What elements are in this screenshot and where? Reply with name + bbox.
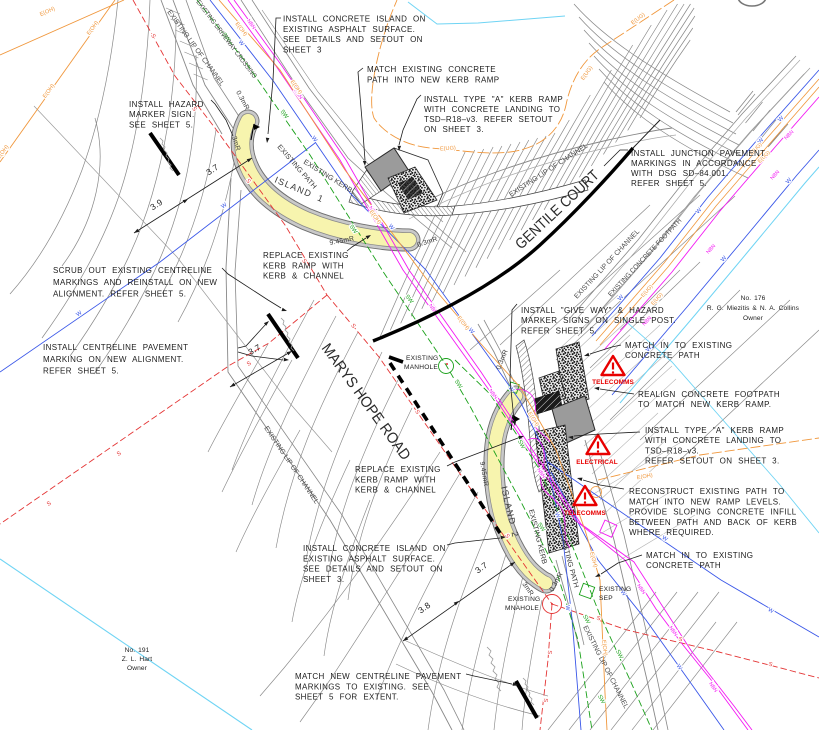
svg-text:Z. L. Hart: Z. L. Hart bbox=[122, 656, 153, 663]
svg-text:SEE SHEET 5.: SEE SHEET 5. bbox=[129, 120, 193, 129]
svg-text:EXISTING ASPHALT SURFACE.: EXISTING ASPHALT SURFACE. bbox=[303, 554, 435, 563]
svg-text:MATCH IN TO EXISTING: MATCH IN TO EXISTING bbox=[625, 341, 732, 350]
svg-text:TSD–R18–v3.: TSD–R18–v3. bbox=[645, 446, 699, 455]
svg-text:EXISTING: EXISTING bbox=[406, 355, 438, 362]
svg-text:CONCRETE PATH: CONCRETE PATH bbox=[646, 561, 721, 570]
svg-text:SHEET 3: SHEET 3 bbox=[283, 46, 322, 55]
svg-text:BETWEEN PATH AND BACK OF KERB: BETWEEN PATH AND BACK OF KERB bbox=[629, 518, 797, 527]
svg-text:INSTALL CONCRETE ISLAND ON: INSTALL CONCRETE ISLAND ON bbox=[283, 15, 426, 24]
svg-text:No. 191: No. 191 bbox=[125, 647, 150, 654]
svg-text:INSTALL TYPE "A" KERB RAMP: INSTALL TYPE "A" KERB RAMP bbox=[645, 426, 784, 435]
svg-text:MATCH EXISTING CONCRETE: MATCH EXISTING CONCRETE bbox=[367, 65, 496, 74]
svg-text:WITH CONCRETE LANDING TO: WITH CONCRETE LANDING TO bbox=[424, 105, 560, 114]
svg-text:No. 176: No. 176 bbox=[741, 295, 766, 302]
svg-text:ELECTRICAL: ELECTRICAL bbox=[576, 459, 617, 466]
svg-text:KERB & CHANNEL: KERB & CHANNEL bbox=[355, 486, 436, 495]
svg-text:PATH INTO NEW KERB RAMP: PATH INTO NEW KERB RAMP bbox=[367, 75, 499, 84]
svg-text:MATCH IN TO EXISTING: MATCH IN TO EXISTING bbox=[646, 551, 753, 560]
svg-text:TELECOMMS: TELECOMMS bbox=[564, 510, 606, 517]
svg-text:KERB RAMP WITH: KERB RAMP WITH bbox=[355, 475, 436, 484]
svg-text:SEE DETAILS AND SETOUT ON: SEE DETAILS AND SETOUT ON bbox=[303, 565, 443, 574]
svg-text:R. G. Miezitis & N. A. Collins: R. G. Miezitis & N. A. Collins bbox=[707, 305, 800, 312]
svg-text:REPLACE EXISTING: REPLACE EXISTING bbox=[263, 251, 349, 260]
svg-text:WITH DSG SD–84.001.: WITH DSG SD–84.001. bbox=[631, 169, 729, 178]
svg-text:INSTALL "GIVE WAY" & HAZARD: INSTALL "GIVE WAY" & HAZARD bbox=[521, 306, 664, 315]
svg-text:RECONSTRUCT EXISTING PATH TO: RECONSTRUCT EXISTING PATH TO bbox=[629, 487, 785, 496]
svg-text:TSD–R18–v3. REFER SETOUT: TSD–R18–v3. REFER SETOUT bbox=[424, 115, 553, 124]
svg-text:TO MATCH NEW KERB RAMP.: TO MATCH NEW KERB RAMP. bbox=[638, 400, 771, 409]
svg-text:SEE DETAILS AND SETOUT ON: SEE DETAILS AND SETOUT ON bbox=[283, 35, 423, 44]
svg-text:MATCH INTO NEW RAMP LEVELS.: MATCH INTO NEW RAMP LEVELS. bbox=[629, 497, 781, 506]
svg-text:Owner: Owner bbox=[127, 665, 148, 672]
svg-text:INSTALL JUNCTION PAVEMENT: INSTALL JUNCTION PAVEMENT bbox=[631, 149, 765, 158]
svg-text:S: S bbox=[542, 698, 548, 703]
svg-text:EXISTING ASPHALT SURFACE.: EXISTING ASPHALT SURFACE. bbox=[283, 25, 415, 34]
svg-text:S: S bbox=[546, 650, 552, 655]
svg-text:MARKINGS AND REINSTALL ON NEW: MARKINGS AND REINSTALL ON NEW bbox=[53, 278, 217, 287]
svg-text:PROVIDE SLOPING CONCRETE INFIL: PROVIDE SLOPING CONCRETE INFILL bbox=[629, 508, 797, 517]
svg-text:REPLACE EXISTING: REPLACE EXISTING bbox=[355, 465, 441, 474]
svg-text:MATCH NEW CENTRELINE PAVEMENT: MATCH NEW CENTRELINE PAVEMENT bbox=[295, 672, 461, 681]
svg-text:INSTALL TYPE "A" KERB RAMP: INSTALL TYPE "A" KERB RAMP bbox=[424, 95, 563, 104]
svg-text:MARKING ON NEW ALIGNMENT.: MARKING ON NEW ALIGNMENT. bbox=[43, 355, 184, 364]
svg-text:EXISTING: EXISTING bbox=[599, 586, 631, 593]
svg-text:EXISTING: EXISTING bbox=[508, 596, 540, 603]
svg-text:MANHOLE: MANHOLE bbox=[404, 364, 438, 371]
svg-text:REFER SHEET 5.: REFER SHEET 5. bbox=[631, 179, 707, 188]
svg-text:INSTALL CONCRETE ISLAND ON: INSTALL CONCRETE ISLAND ON bbox=[303, 544, 446, 553]
svg-text:MARKER SIGNS ON SINGLE POST.: MARKER SIGNS ON SINGLE POST. bbox=[521, 316, 676, 325]
svg-text:INSTALL CENTRELINE PAVEMENT: INSTALL CENTRELINE PAVEMENT bbox=[43, 343, 188, 352]
svg-text:REFER SHEET 5.: REFER SHEET 5. bbox=[521, 326, 597, 335]
svg-text:MARKER SIGN.: MARKER SIGN. bbox=[129, 110, 195, 119]
svg-text:KERB & CHANNEL: KERB & CHANNEL bbox=[263, 272, 344, 281]
svg-text:SHEET 5 FOR EXTENT.: SHEET 5 FOR EXTENT. bbox=[295, 693, 399, 702]
svg-text:WHERE REQUIRED.: WHERE REQUIRED. bbox=[629, 528, 714, 537]
svg-text:ALIGNMENT. REFER SHEET 5.: ALIGNMENT. REFER SHEET 5. bbox=[53, 290, 186, 299]
svg-text:W: W bbox=[564, 605, 570, 611]
svg-text:Owner: Owner bbox=[743, 315, 764, 322]
svg-text:CONCRETE PATH: CONCRETE PATH bbox=[625, 351, 700, 360]
svg-text:WITH CONCRETE LANDING TO: WITH CONCRETE LANDING TO bbox=[645, 436, 781, 445]
svg-text:MARKINGS TO EXISTING. SEE: MARKINGS TO EXISTING. SEE bbox=[295, 682, 429, 691]
svg-text:TELECOMMS: TELECOMMS bbox=[592, 379, 634, 386]
svg-text:MARKINGS IN ACCORDANCE: MARKINGS IN ACCORDANCE bbox=[631, 159, 757, 168]
svg-text:SEP: SEP bbox=[599, 595, 613, 602]
svg-text:REFER SETOUT ON SHEET 3.: REFER SETOUT ON SHEET 3. bbox=[645, 457, 780, 466]
svg-text:REALIGN CONCRETE FOOTPATH: REALIGN CONCRETE FOOTPATH bbox=[638, 390, 780, 399]
svg-text:SHEET 3.: SHEET 3. bbox=[303, 575, 344, 584]
svg-text:KERB RAMP WITH: KERB RAMP WITH bbox=[263, 261, 344, 270]
svg-text:REFER SHEET 5.: REFER SHEET 5. bbox=[43, 367, 119, 376]
svg-text:MNAHOLE: MNAHOLE bbox=[505, 605, 539, 612]
svg-text:INSTALL HAZARD: INSTALL HAZARD bbox=[129, 100, 204, 109]
svg-text:ON SHEET 3.: ON SHEET 3. bbox=[424, 125, 484, 134]
svg-text:E(UG): E(UG) bbox=[440, 145, 456, 152]
svg-text:SCRUB OUT EXISTING CENTRELINE: SCRUB OUT EXISTING CENTRELINE bbox=[53, 266, 212, 275]
